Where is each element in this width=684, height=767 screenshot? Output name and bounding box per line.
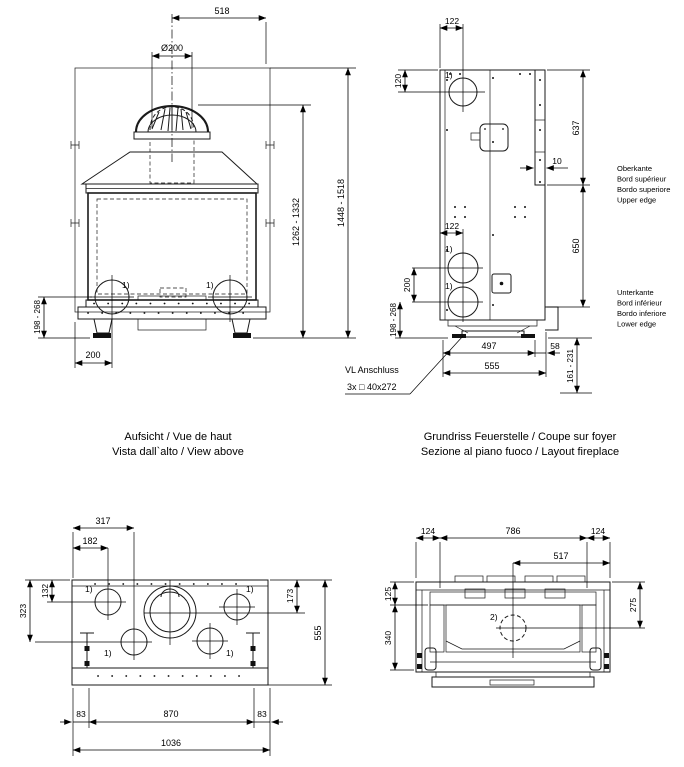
dim-83-right: 83 (257, 709, 267, 719)
label-lower-edge: Lower edge (617, 320, 656, 329)
top-view: 1) 1) 1) 1) 317 182 132 323 173 555 83 8… (18, 516, 332, 756)
label-bord-inferieur: Bord inférieur (617, 299, 663, 308)
technical-drawing-sheet: 1) 1) 518 Ø200 1262 - 1332 1448 - 1518 1… (0, 0, 684, 767)
dim-173: 173 (285, 589, 295, 603)
label-vl-size: 3x □ 40x272 (347, 382, 396, 392)
label-bordo-inferiore: Bordo inferiore (617, 309, 666, 318)
dim-555-side: 555 (484, 361, 499, 371)
label-upper-edge: Upper edge (617, 196, 656, 205)
dim-317: 317 (95, 516, 110, 526)
dim-182: 182 (82, 536, 97, 546)
dim-flue-diameter: Ø200 (161, 43, 183, 53)
note-1-top-bl: 1) (104, 648, 112, 658)
dim-161-231: 161 - 231 (566, 349, 575, 383)
note-1-top-tl: 1) (85, 584, 93, 594)
side-view: 1) 1) 1) 122 120 637 10 122 200 (345, 16, 670, 458)
dim-555-top: 555 (313, 625, 323, 640)
dim-120: 120 (393, 74, 403, 88)
dim-198-268-front: 198 - 268 (33, 300, 42, 334)
label-bord-superieur: Bord supérieur (617, 175, 667, 184)
dim-124-right: 124 (591, 526, 605, 536)
fireplace-dimension-drawing: 1) 1) 518 Ø200 1262 - 1332 1448 - 1518 1… (0, 0, 684, 767)
dim-870: 870 (163, 709, 178, 719)
dim-323: 323 (18, 604, 28, 618)
dim-1036: 1036 (161, 738, 181, 748)
note-1-side-mid: 1) (445, 244, 453, 254)
front-view: 1) 1) 518 Ø200 1262 - 1332 1448 - 1518 1… (33, 6, 356, 458)
dim-517: 517 (553, 551, 568, 561)
note-1-front-left: 1) (122, 280, 130, 290)
dim-650: 650 (571, 238, 581, 253)
note-1-side-low: 1) (445, 281, 453, 291)
dim-497: 497 (481, 341, 496, 351)
caption-side-view-line1: Grundriss Feuerstelle / Coupe sur foyer (424, 431, 617, 443)
dim-1262-1332: 1262 - 1332 (291, 198, 301, 246)
note-1-top-tr: 1) (246, 584, 254, 594)
label-vl-anschluss: VL Anschluss (345, 365, 399, 375)
dim-518: 518 (214, 6, 229, 16)
dim-198-268-side: 198 - 268 (389, 303, 398, 337)
label-oberkante: Oberkante (617, 164, 652, 173)
dim-1448-1518: 1448 - 1518 (336, 179, 346, 227)
lower-edge-label: Unterkante Bord inférieur Bordo inferior… (617, 288, 666, 329)
dim-637: 637 (571, 120, 581, 135)
upper-edge-label: Oberkante Bord supérieur Bordo superiore… (617, 164, 670, 205)
dim-122-mid: 122 (445, 221, 459, 231)
fastener-dots (446, 73, 541, 311)
note-1-top-br: 1) (226, 648, 234, 658)
dim-200-side: 200 (402, 278, 412, 292)
note-2-section: 2) (490, 612, 498, 622)
dim-83-left: 83 (76, 709, 86, 719)
dim-124-left: 124 (421, 526, 435, 536)
section-view: 2) 124 786 124 517 125 340 (383, 526, 645, 687)
note-1-front-right: 1) (206, 280, 214, 290)
caption-side-view-line2: Sezione al piano fuoco / Layout fireplac… (421, 446, 619, 458)
caption-front-view-line2: Vista dall`alto / View above (112, 446, 244, 458)
dim-58: 58 (550, 341, 560, 351)
caption-front-view-line1: Aufsicht / Vue de haut (124, 431, 231, 443)
dim-786: 786 (505, 526, 520, 536)
dim-10: 10 (552, 156, 562, 166)
dim-275: 275 (628, 598, 638, 612)
dim-132: 132 (40, 584, 50, 598)
dim-125: 125 (383, 587, 393, 601)
note-1-side-top: 1) (445, 70, 453, 80)
dim-340: 340 (383, 631, 393, 645)
dim-200-front: 200 (85, 350, 100, 360)
label-unterkante: Unterkante (617, 288, 654, 297)
label-bordo-superiore: Bordo superiore (617, 185, 670, 194)
dim-122-top: 122 (445, 16, 459, 26)
